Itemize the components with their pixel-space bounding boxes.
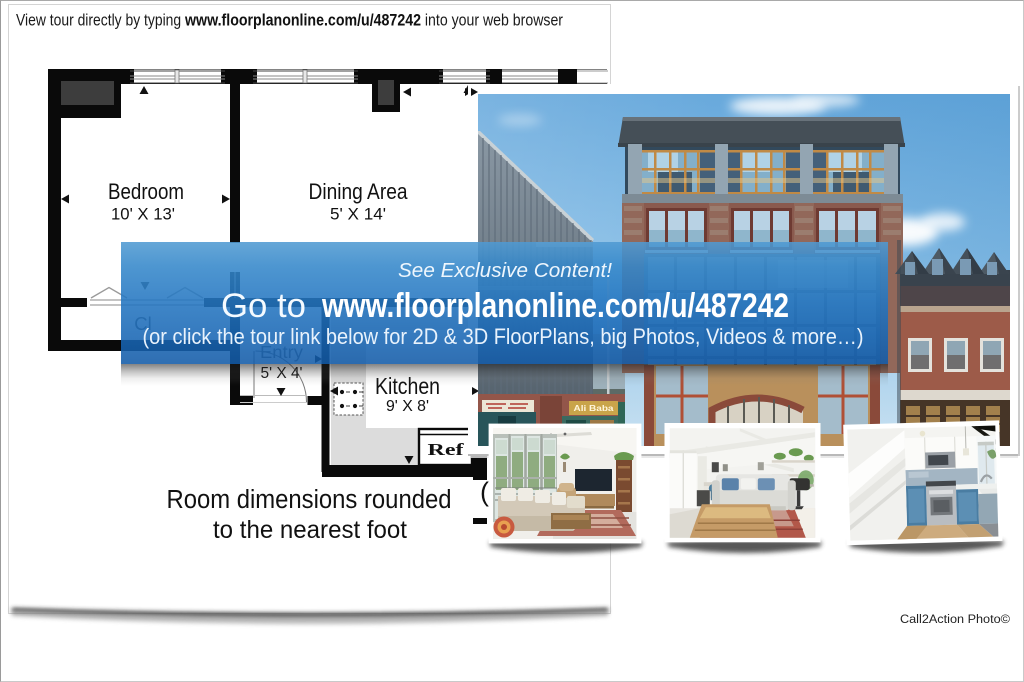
svg-text:Ref: Ref <box>428 440 464 459</box>
svg-text:See Exclusive Content!: See Exclusive Content! <box>398 260 612 282</box>
svg-text:Go to: Go to <box>221 287 306 325</box>
svg-text:5' X 14': 5' X 14' <box>330 205 386 224</box>
svg-text:Bedroom: Bedroom <box>108 179 184 204</box>
svg-text:10' X 13': 10' X 13' <box>111 205 175 224</box>
svg-text:Room dimensions rounded: Room dimensions rounded <box>167 486 452 514</box>
svg-text:Ali Baba: Ali Baba <box>574 404 615 413</box>
svg-text:www.floorplanonline.com/u/4872: www.floorplanonline.com/u/487242 <box>321 287 789 325</box>
svg-text:Dining Area: Dining Area <box>309 179 409 204</box>
svg-text:(or click the tour link below: (or click the tour link below for 2D & 3… <box>143 324 864 349</box>
svg-text:to the nearest foot: to the nearest foot <box>213 516 407 544</box>
svg-text:9' X 8': 9' X 8' <box>386 398 429 415</box>
svg-text:Call2Action Photo©: Call2Action Photo© <box>900 612 1010 626</box>
